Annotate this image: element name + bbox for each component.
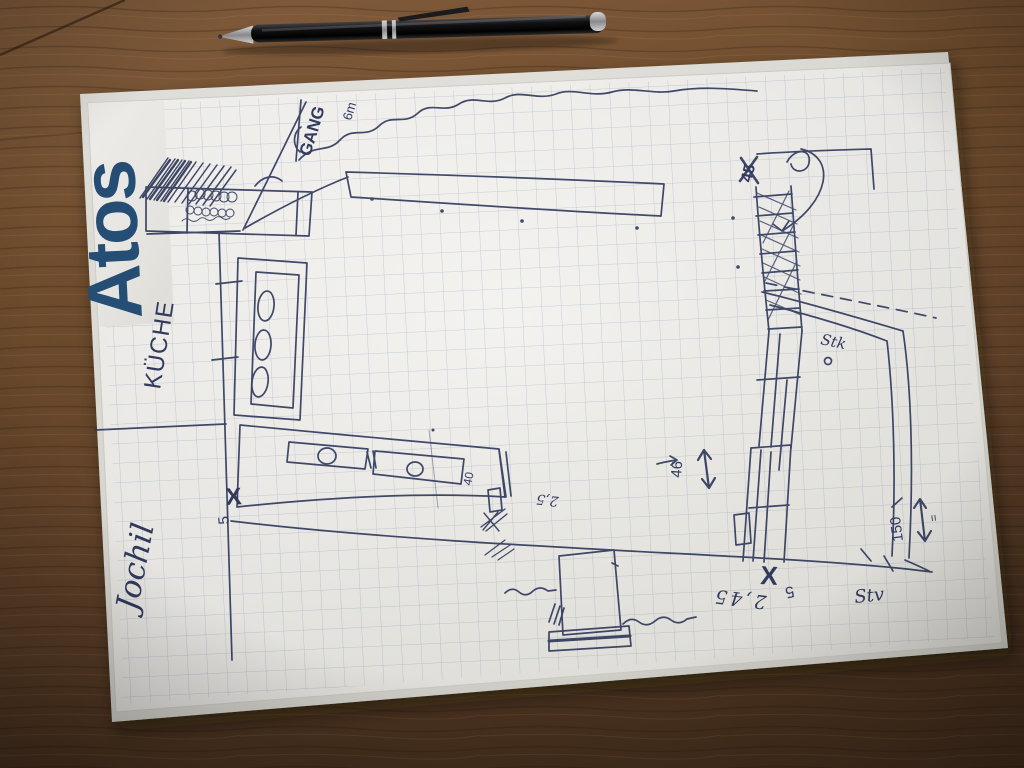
- scene-canvas: Atos: [0, 0, 1024, 768]
- x-mark-counter: X: [225, 483, 242, 511]
- atos-logo: Atos: [66, 160, 159, 322]
- pen-ring-2: [392, 20, 397, 39]
- measure-25-label: 2,5: [535, 490, 560, 509]
- photo-of-floorplan-sketch: Atos: [0, 0, 1024, 768]
- x-mark-bottom: X: [760, 560, 780, 591]
- stv-label: Stv: [853, 584, 885, 608]
- measure-150-label: 150: [887, 516, 907, 543]
- pen-ring-1: [382, 20, 388, 39]
- pen-end-cap: [590, 12, 607, 31]
- five-counter: 5: [215, 515, 233, 525]
- measure-46-label: 46: [668, 460, 686, 478]
